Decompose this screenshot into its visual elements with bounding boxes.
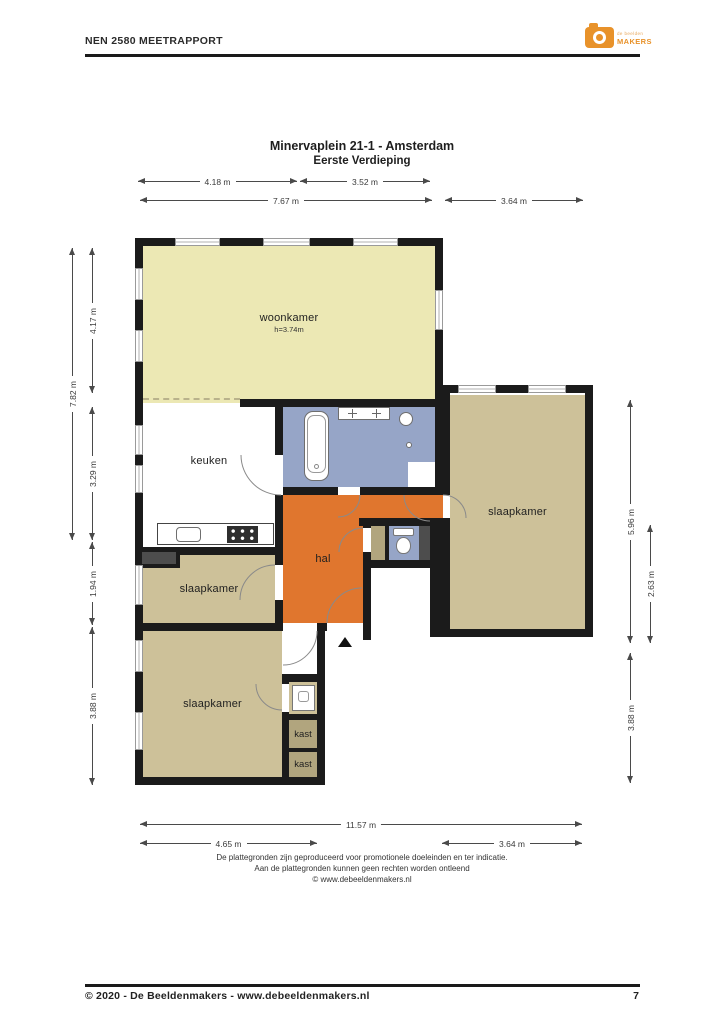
dim-label: 3.64 m xyxy=(494,839,530,849)
footer-copyright: © 2020 - De Beeldenmakers - www.debeelde… xyxy=(85,990,370,1002)
page-number: 7 xyxy=(633,990,639,1002)
dim-label: 4.65 m xyxy=(211,839,247,849)
entrance-arrow-icon xyxy=(338,637,352,647)
dim-label: 11.57 m xyxy=(341,820,381,830)
dim-bottom-4-65: 4.65 m xyxy=(140,843,317,844)
dim-bottom-11-57: 11.57 m xyxy=(140,824,582,825)
disclaimer-line-2: Aan de plattegronden kunnen geen rechten… xyxy=(0,864,724,873)
footer-rule xyxy=(85,984,640,987)
report-page: { "header": { "title": "NEN 2580 MEETRAP… xyxy=(0,0,724,1024)
disclaimer-line-1: De plattegronden zijn geproduceerd voor … xyxy=(0,853,724,862)
dim-bottom-3-64: 3.64 m xyxy=(442,843,582,844)
disclaimer-line-3: © www.debeeldenmakers.nl xyxy=(0,875,724,884)
